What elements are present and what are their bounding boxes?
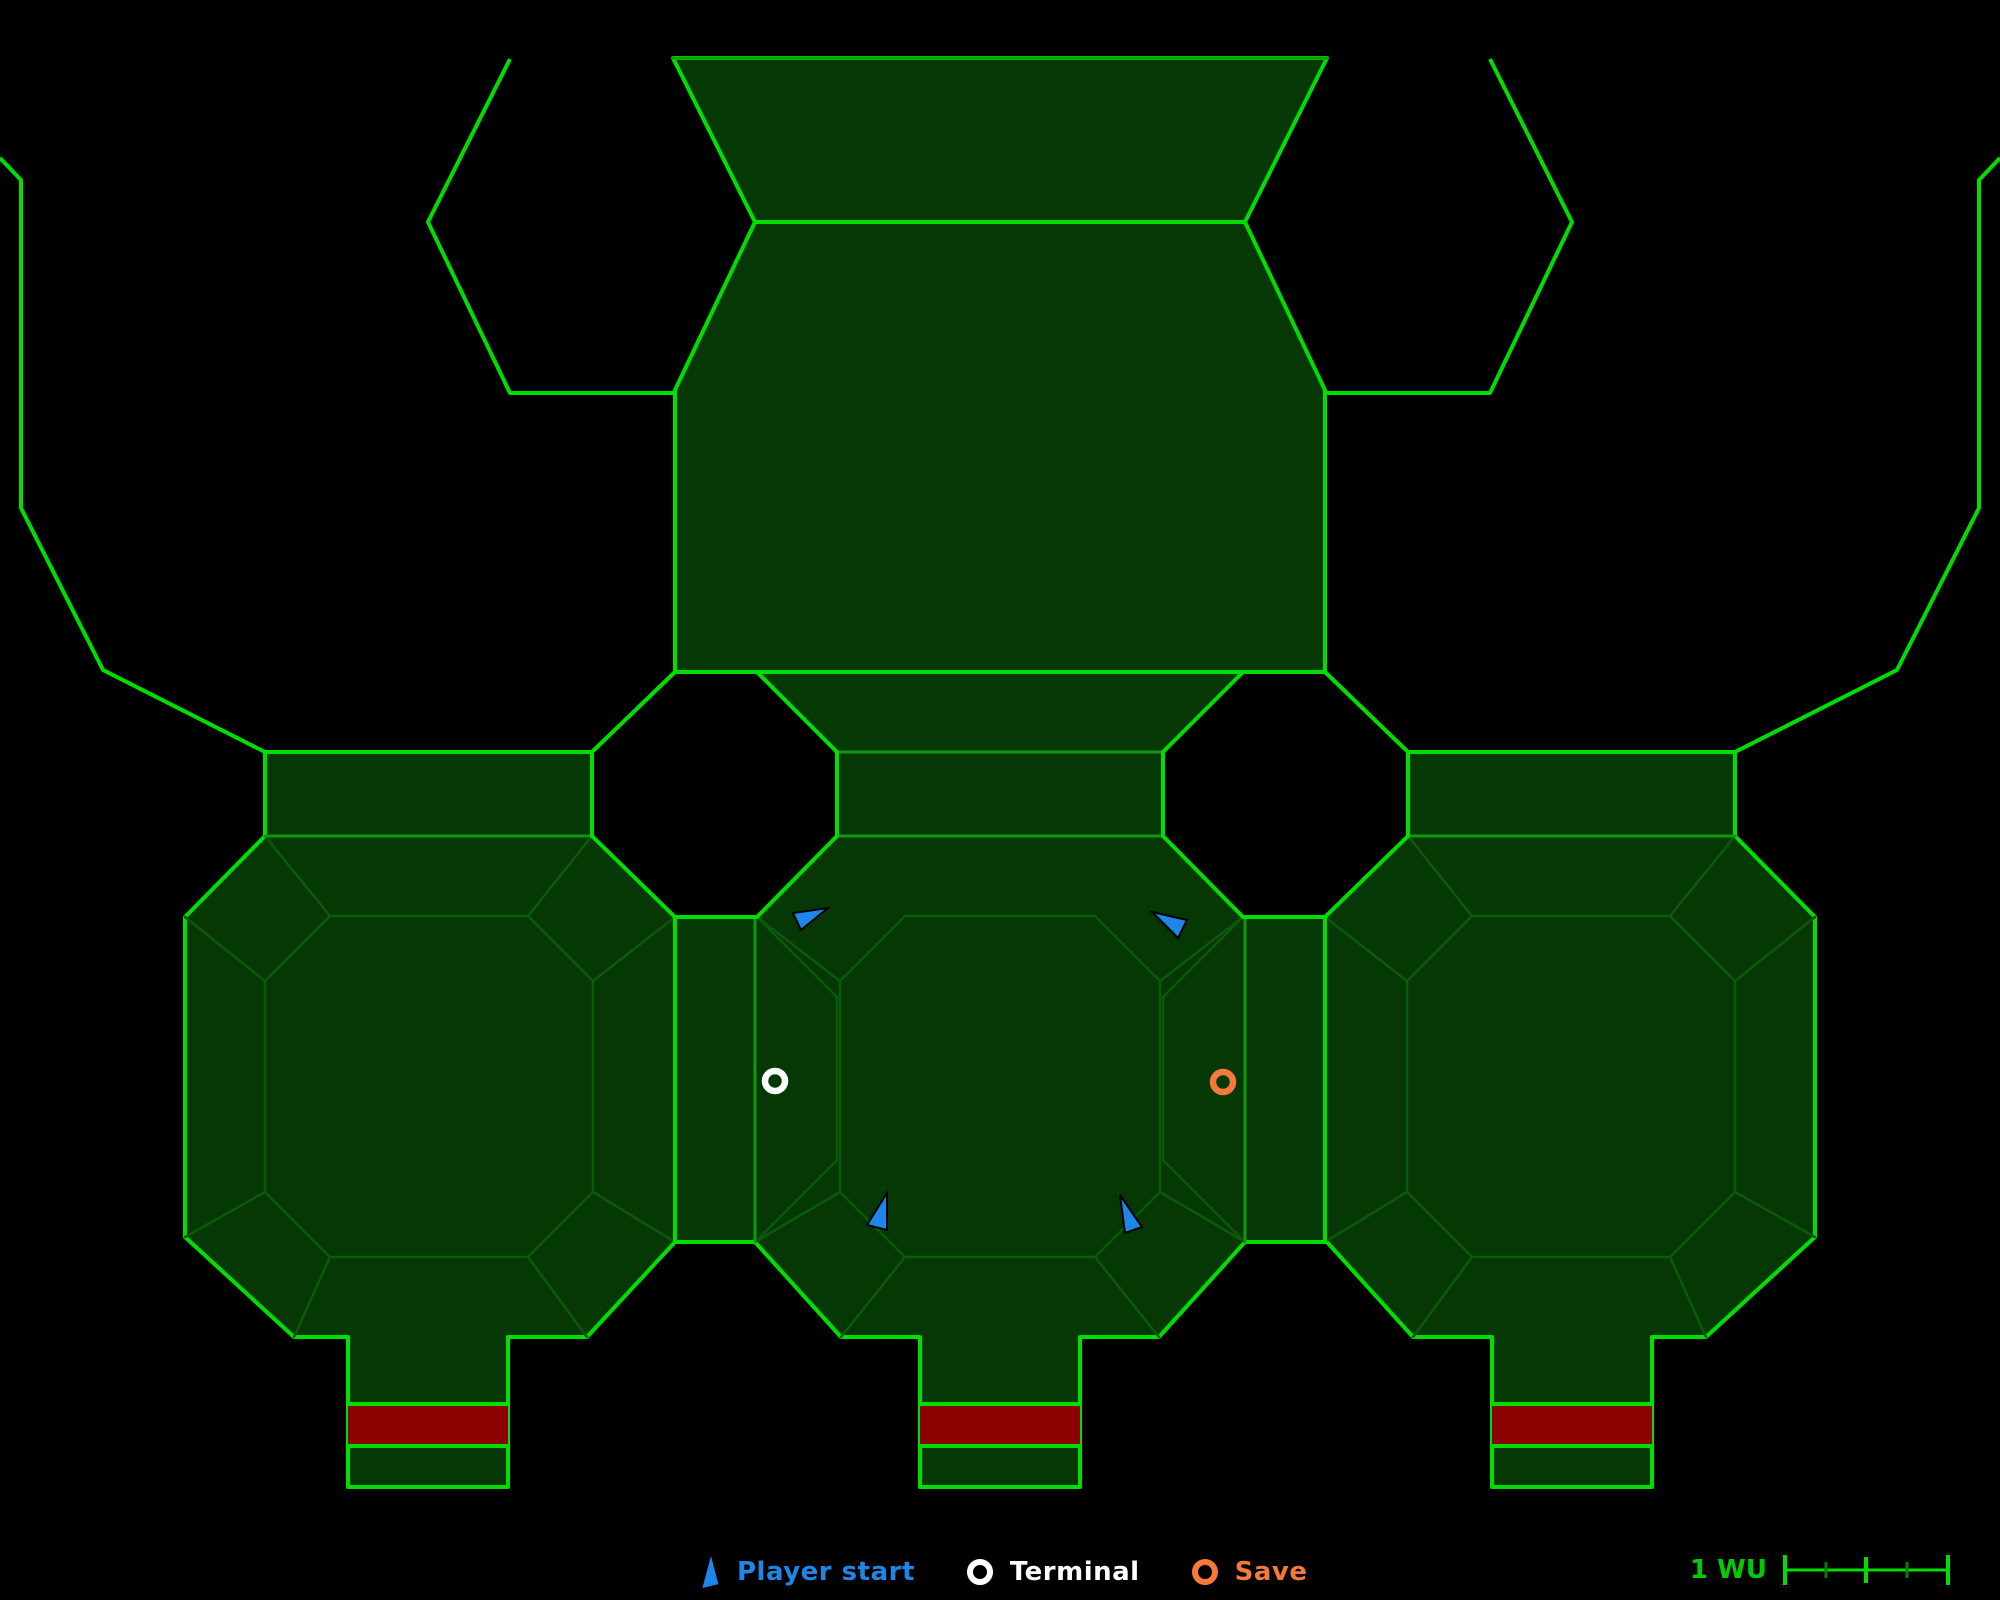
map-canvas[interactable]: [0, 0, 2000, 1600]
scale-bar-ruler: [1777, 1544, 1957, 1596]
save-icon: [1192, 1559, 1218, 1585]
legend-label-terminal: Terminal: [1010, 1557, 1140, 1587]
legend-label-player-start: Player start: [737, 1557, 915, 1587]
legend: Player start Terminal Save: [700, 1550, 1307, 1594]
legend-item-save: Save: [1192, 1557, 1308, 1587]
door[interactable]: [920, 1404, 1080, 1446]
legend-label-save: Save: [1235, 1557, 1308, 1587]
door[interactable]: [1492, 1404, 1652, 1446]
legend-item-player-start: Player start: [700, 1556, 915, 1588]
terminal-icon: [967, 1559, 993, 1585]
player-start-icon: [700, 1556, 720, 1588]
map-editor-viewport: { "legend": { "items": [ {"name": "playe…: [0, 0, 2000, 1600]
scale-bar-label: 1 WU: [1690, 1555, 1767, 1585]
door[interactable]: [348, 1404, 508, 1446]
legend-item-terminal: Terminal: [967, 1557, 1140, 1587]
scale-bar: 1 WU: [1690, 1544, 1957, 1596]
